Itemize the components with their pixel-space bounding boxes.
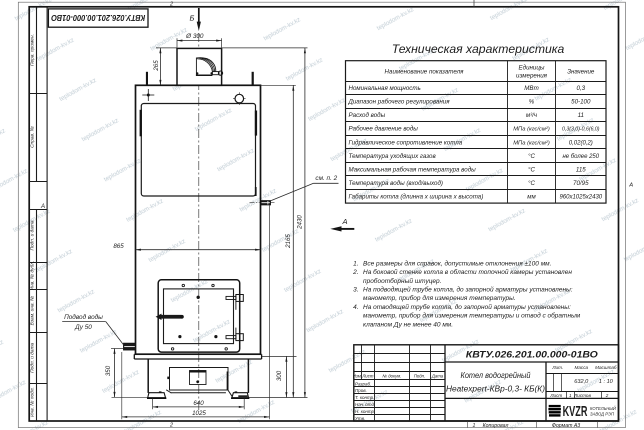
svg-text:Ø 300: Ø 300 <box>185 33 204 40</box>
svg-text:Разраб.: Разраб. <box>355 381 371 386</box>
svg-text:Листов: Листов <box>573 393 591 398</box>
svg-text:1: 1 <box>569 393 572 398</box>
svg-text:Н. контр.: Н. контр. <box>355 409 375 414</box>
svg-text:А: А <box>341 217 347 226</box>
svg-text:мм: мм <box>527 194 536 201</box>
svg-text:0,02(0,2): 0,02(0,2) <box>569 140 593 146</box>
svg-text:Инв. № дубл.: Инв. № дубл. <box>30 261 36 291</box>
svg-text:Все размеры для справок, допус: Все размеры для справок, допустимые откл… <box>363 259 552 267</box>
svg-text:Рабочее давление воды: Рабочее давление воды <box>349 126 419 133</box>
svg-text:Взам. инв. №: Взам. инв. № <box>30 296 36 326</box>
svg-text:50-100: 50-100 <box>571 99 591 106</box>
svg-text:°С: °С <box>528 166 535 173</box>
svg-text:3.: 3. <box>353 287 359 294</box>
svg-text:Температура уходящих газов: Температура уходящих газов <box>349 153 437 160</box>
svg-text:2: 2 <box>169 2 173 8</box>
svg-text:Масштаб: Масштаб <box>595 365 617 370</box>
svg-text:ЗАВОД РЭП: ЗАВОД РЭП <box>590 412 615 417</box>
svg-text:пробоотборный штуцер.: пробоотборный штуцер. <box>363 277 442 285</box>
svg-text:Пров.: Пров. <box>355 388 367 393</box>
svg-text:Ду 50: Ду 50 <box>74 324 92 331</box>
svg-text:632,0: 632,0 <box>574 379 589 385</box>
svg-text:манометр, прибор для измерения: манометр, прибор для измерения температу… <box>363 294 516 302</box>
svg-text:Утв.: Утв. <box>355 416 365 421</box>
svg-text:1025: 1025 <box>192 410 206 417</box>
svg-text:Лист: Лист <box>361 373 373 378</box>
svg-text:Наименование показателя: Наименование показателя <box>385 69 465 76</box>
svg-text:Расход воды: Расход воды <box>349 112 386 119</box>
svg-text:0,3(3,0)-0,6(6,0): 0,3(3,0)-0,6(6,0) <box>562 127 600 133</box>
svg-text:КВТУ.026.201.00.000-01ВО: КВТУ.026.201.00.000-01ВО <box>51 13 145 23</box>
svg-text:Максимальная рабочая температу: Максимальная рабочая температура воды <box>349 166 477 173</box>
svg-text:70/95: 70/95 <box>573 180 589 187</box>
svg-text:°С: °С <box>528 153 535 160</box>
svg-text:2.: 2. <box>352 269 359 276</box>
svg-text:1: 1 <box>472 423 475 429</box>
svg-text:Номинальная мощность: Номинальная мощность <box>349 85 421 92</box>
svg-text:КВТУ.026.201.00.000-01ВО: КВТУ.026.201.00.000-01ВО <box>466 349 599 360</box>
svg-text:Подп. и дата: Подп. и дата <box>30 342 36 372</box>
svg-text:115: 115 <box>576 166 586 173</box>
svg-text:2: 2 <box>605 393 609 398</box>
svg-text:Подвод воды: Подвод воды <box>64 313 103 321</box>
svg-text:Диапазон рабочего регулировани: Диапазон рабочего регулирования <box>348 99 451 106</box>
svg-text:клапаном Ду не менее 40 мм.: клапаном Ду не менее 40 мм. <box>363 321 453 328</box>
svg-text:0,3: 0,3 <box>576 85 585 92</box>
svg-text:Б: Б <box>190 13 195 22</box>
svg-text:°С: °С <box>528 180 535 187</box>
svg-text:960х1025х2430: 960х1025х2430 <box>559 195 602 201</box>
svg-text:№ докум.: № докум. <box>382 373 401 378</box>
svg-text:%: % <box>529 99 535 106</box>
svg-text:640: 640 <box>193 400 204 407</box>
svg-text:На боковой стенке котла в обла: На боковой стенке котла в области топочн… <box>363 268 572 276</box>
svg-text:см. п. 2: см. п. 2 <box>315 175 337 182</box>
svg-text:На подводящей трубе котла, до: На подводящей трубе котла, до запорной а… <box>363 286 573 294</box>
svg-text:Котел водогрейный: Котел водогрейный <box>461 371 532 380</box>
svg-text:Лит.: Лит. <box>551 365 563 370</box>
svg-text:Габариты котла (длинна х ширин: Габариты котла (длинна х ширина х высота… <box>349 194 484 201</box>
svg-text:Heatexpert-КВр-0,3- КБ(К): Heatexpert-КВр-0,3- КБ(К) <box>446 384 545 393</box>
svg-text:Техническая характеристика: Техническая характеристика <box>392 42 565 56</box>
svg-text:Гидравлическое сопротивление к: Гидравлическое сопротивление котла <box>349 139 463 146</box>
svg-text:Единицы: Единицы <box>519 65 545 72</box>
svg-text:А: А <box>628 183 633 189</box>
svg-text:4.: 4. <box>353 304 359 311</box>
svg-text:измерения: измерения <box>516 73 548 80</box>
svg-text:265: 265 <box>153 60 160 72</box>
svg-text:Перв. примен.: Перв. примен. <box>30 34 36 66</box>
svg-text:2430: 2430 <box>297 215 304 230</box>
svg-text:1 : 10: 1 : 10 <box>599 379 614 385</box>
svg-text:МПа (кгс/см²): МПа (кгс/см²) <box>513 127 550 133</box>
svg-text:Значение: Значение <box>567 69 595 76</box>
svg-text:манометр, прибор для измерения: манометр, прибор для измерения температу… <box>363 312 581 320</box>
svg-text:Масса: Масса <box>575 365 589 370</box>
svg-text:МПа (кгс/см²): МПа (кгс/см²) <box>513 140 550 146</box>
svg-text:КОТЕЛЬНЫЙ: КОТЕЛЬНЫЙ <box>590 404 616 411</box>
svg-text:Нач. отд.: Нач. отд. <box>355 402 375 407</box>
svg-text:865: 865 <box>113 243 124 250</box>
svg-text:Копировал: Копировал <box>483 423 509 429</box>
svg-text:Инв. № подл.: Инв. № подл. <box>30 387 36 417</box>
svg-text:Температура воды (вход/выход): Температура воды (вход/выход) <box>349 180 443 187</box>
svg-text:Формат А3: Формат А3 <box>552 423 580 429</box>
svg-text:не более 250: не более 250 <box>562 154 599 160</box>
svg-text:Справ. №: Справ. № <box>30 126 36 148</box>
svg-text:Подп. и дата: Подп. и дата <box>30 220 36 250</box>
svg-text:На отводящей трубе котла, до з: На отводящей трубе котла, до запорной ар… <box>363 303 571 311</box>
svg-text:Лист: Лист <box>549 393 562 398</box>
svg-text:Т. контр.: Т. контр. <box>355 395 374 400</box>
svg-text:300: 300 <box>276 370 283 381</box>
svg-text:Дата: Дата <box>431 373 444 378</box>
svg-text:Подп.: Подп. <box>414 373 425 378</box>
svg-text:KVZR: KVZR <box>563 404 588 420</box>
svg-text:11: 11 <box>578 112 584 119</box>
svg-text:МВт: МВт <box>524 85 538 92</box>
svg-text:м³/ч: м³/ч <box>526 112 538 119</box>
svg-text:1.: 1. <box>353 260 359 267</box>
svg-text:Изм.: Изм. <box>353 373 362 378</box>
svg-text:2: 2 <box>169 423 173 429</box>
svg-text:350: 350 <box>105 365 112 376</box>
svg-text:2165: 2165 <box>285 234 292 249</box>
